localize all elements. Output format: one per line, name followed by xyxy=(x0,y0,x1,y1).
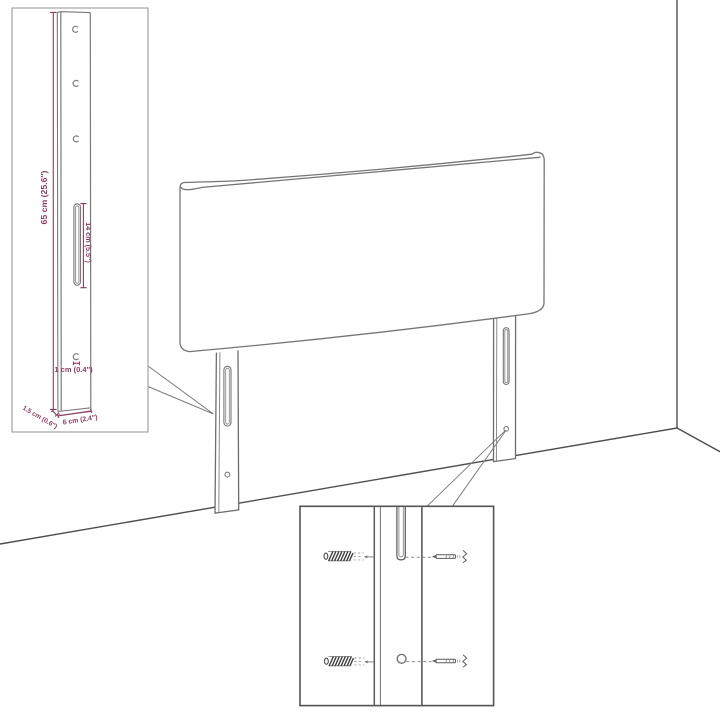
svg-text:14 cm (5.5″): 14 cm (5.5″) xyxy=(84,222,93,263)
svg-text:65 cm (25.6″): 65 cm (25.6″) xyxy=(39,170,49,224)
svg-text:1 cm (0.4″): 1 cm (0.4″) xyxy=(54,365,93,374)
